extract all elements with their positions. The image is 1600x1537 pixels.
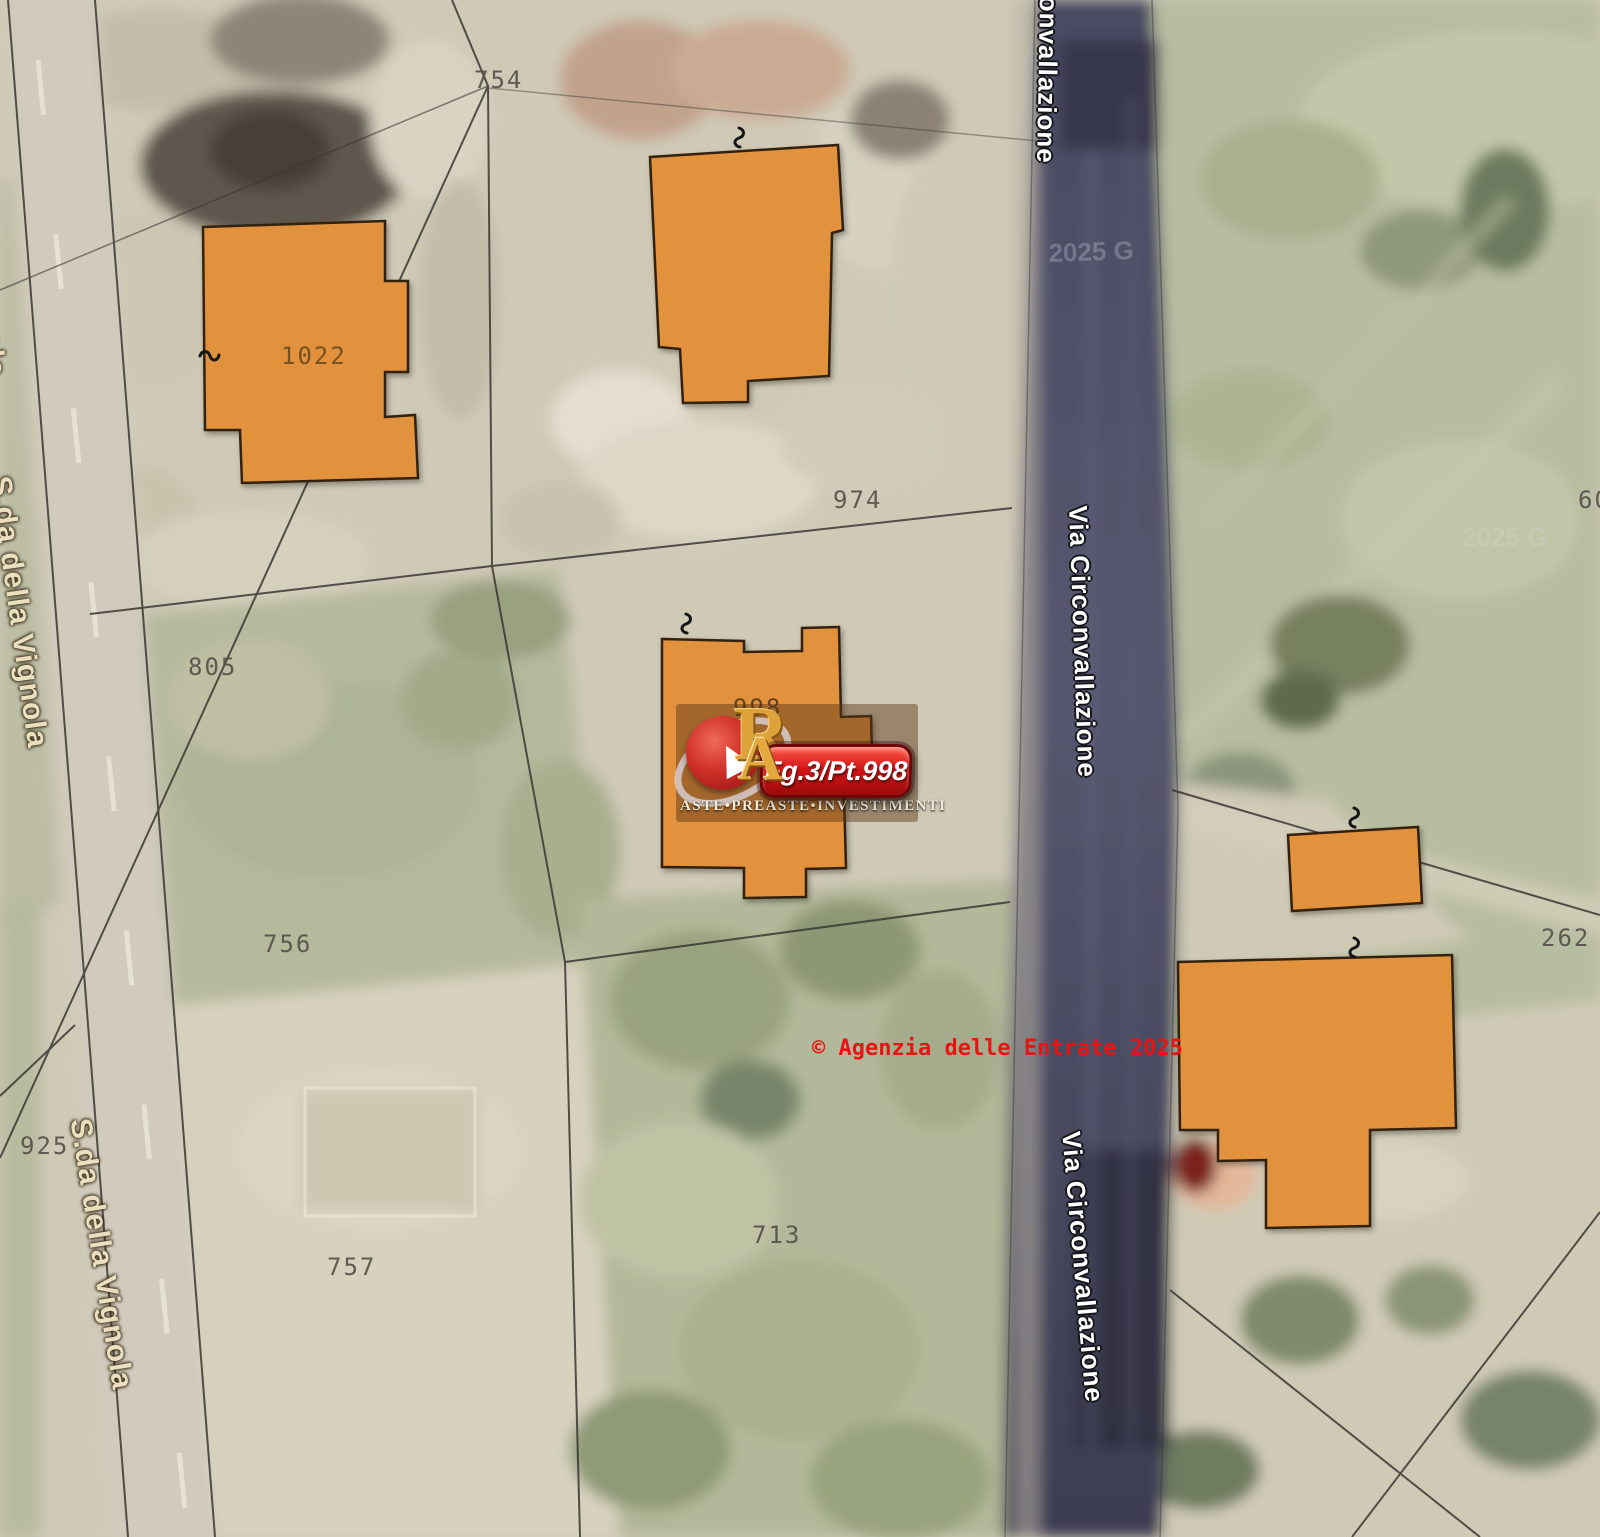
- road-edge-line: [1005, 0, 1035, 1537]
- parcel-label-805: 805: [188, 653, 237, 681]
- parcel-label-754: 754: [474, 66, 523, 94]
- cadastral-line: [452, 0, 580, 1537]
- parcel-label-756: 756: [263, 930, 312, 958]
- cadastral-map-canvas[interactable]: onvallazione Via Circonvallazione Via Ci…: [0, 0, 1600, 1537]
- stair-symbol: [1350, 938, 1359, 957]
- parcel-label-713: 713: [752, 1221, 801, 1249]
- copyright-watermark: © Agenzia delle Entrate 2025: [812, 1036, 1183, 1061]
- cadastral-line: [488, 88, 1048, 142]
- cadastral-line: [1352, 1212, 1600, 1537]
- field-rectangle: [305, 1088, 475, 1216]
- cadastral-line: [492, 508, 1012, 566]
- cadastral-line: [1170, 1290, 1480, 1537]
- parcel-label-757: 757: [327, 1253, 376, 1281]
- faint-imagery-watermark: 2025 G: [1048, 235, 1134, 269]
- stair-symbol: [735, 128, 744, 147]
- stair-symbol: [1350, 808, 1359, 827]
- building-footprint-bottom-right: [1178, 955, 1456, 1228]
- logo-brand-text: ASTE•PREASTE•INVESTIMENTI: [680, 798, 914, 815]
- logo-watermark: R A Fg.3/Pt.998 ASTE•PREASTE•INVESTIMENT…: [676, 704, 918, 822]
- stair-symbol: [682, 614, 691, 633]
- street-label-circonvallazione-top: onvallazione: [1030, 0, 1064, 164]
- parcel-label-262: 262: [1541, 924, 1590, 952]
- cadastral-line: [90, 566, 492, 614]
- cadastral-line: [565, 902, 1010, 962]
- parcel-label-60-truncated: 60: [1578, 486, 1600, 514]
- logo-badge-text: Fg.3/Pt.998: [764, 756, 908, 787]
- parcel-label-1022: 1022: [281, 342, 347, 370]
- road-edge-line: [1152, 0, 1178, 1537]
- parcel-label-974: 974: [833, 486, 882, 514]
- parcel-label-925: 925: [20, 1132, 69, 1160]
- faint-imagery-watermark: 2025 G: [1462, 522, 1547, 553]
- building-footprint-small-right: [1288, 827, 1422, 911]
- building-footprint-top-middle: [650, 145, 843, 403]
- cadastral-line: [0, 1025, 75, 1096]
- logo-monogram-a: A: [738, 728, 783, 790]
